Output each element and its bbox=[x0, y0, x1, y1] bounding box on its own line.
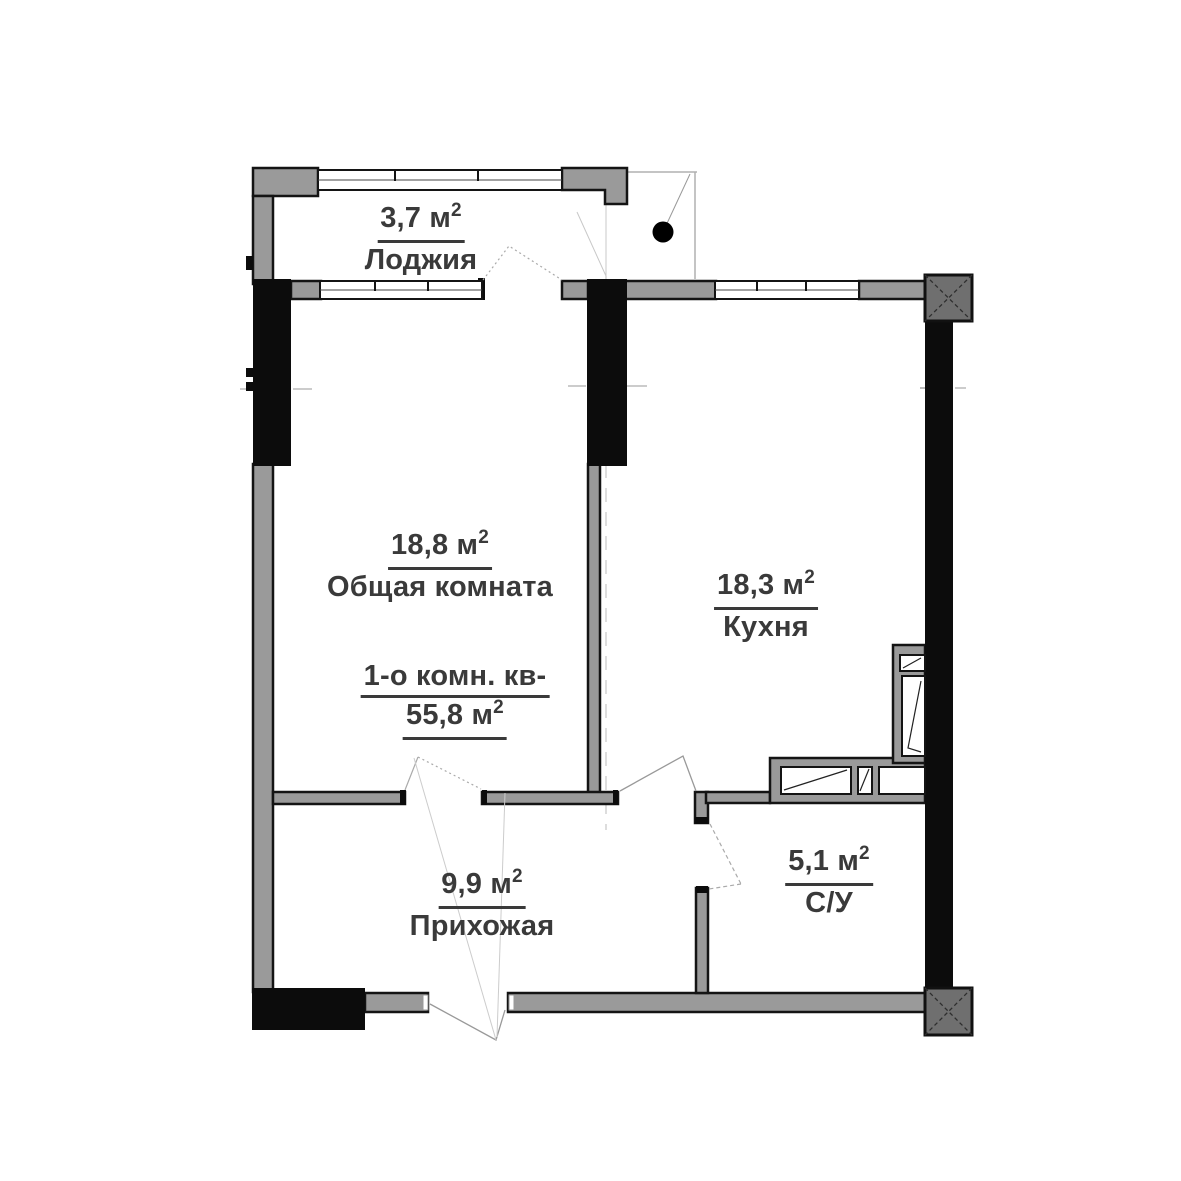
door-jamb-cap bbox=[613, 790, 618, 805]
room-name: Кухня bbox=[723, 611, 809, 643]
wall-notch bbox=[246, 368, 253, 377]
room-label-hallway: 9,9 м2 Прихожая bbox=[410, 867, 555, 943]
door-leaf-living bbox=[405, 757, 418, 790]
window-loggia-outer bbox=[318, 170, 562, 190]
wall-notch bbox=[246, 382, 253, 391]
wall-middle-vertical bbox=[588, 464, 600, 793]
column-top-right bbox=[925, 275, 972, 321]
room-name: Общая комната bbox=[327, 571, 553, 603]
wall-band-segment bbox=[624, 281, 716, 299]
column-left-black bbox=[253, 279, 291, 466]
wall-band-segment bbox=[562, 281, 588, 299]
wall-band-segment bbox=[291, 281, 321, 299]
wall-bathroom-lower bbox=[696, 888, 708, 993]
vent-opening bbox=[902, 676, 925, 756]
door-swing-bathroom bbox=[710, 824, 741, 884]
room-area: 3,7 м2 bbox=[377, 201, 465, 243]
wall-loggia-left bbox=[253, 196, 273, 284]
wall-bottom-left bbox=[365, 993, 428, 1012]
wall-bottom-left-black-block bbox=[252, 988, 365, 1030]
door-swing-entrance bbox=[430, 1004, 505, 1040]
wall-right-black bbox=[925, 321, 953, 988]
apartment-total-area: 55,8 м2 bbox=[403, 698, 507, 740]
room-name: С/У bbox=[805, 887, 853, 919]
floor-plan-drawing bbox=[0, 0, 1181, 1181]
room-label-loggia: 3,7 м2 Лоджия bbox=[365, 201, 478, 277]
apartment-type: 1-о комн. кв- bbox=[361, 659, 550, 698]
door-jamb-cap bbox=[482, 790, 487, 805]
room-label-bathroom: 5,1 м2 С/У bbox=[785, 844, 873, 920]
door-swing-kitchen bbox=[620, 756, 696, 791]
door-jamb-white bbox=[509, 995, 514, 1010]
column-bottom-right bbox=[925, 988, 972, 1035]
wall-interior-right bbox=[482, 792, 618, 804]
vent-opening bbox=[781, 767, 851, 794]
window-kitchen bbox=[715, 281, 859, 299]
wall-notch bbox=[246, 256, 253, 270]
room-area: 5,1 м2 bbox=[785, 844, 873, 886]
column-middle-black bbox=[587, 279, 627, 466]
wall-vent-thin bbox=[706, 792, 770, 803]
door-jamb-cap bbox=[696, 886, 708, 893]
apartment-summary-label: 1-о комн. кв- 55,8 м2 bbox=[361, 659, 550, 740]
round-column-dot bbox=[653, 222, 674, 243]
room-area: 18,3 м2 bbox=[714, 568, 818, 610]
wall-loggia-corner-top-right bbox=[562, 168, 627, 204]
wall-loggia-corner-top-left bbox=[253, 168, 318, 196]
door-jamb-cap bbox=[695, 817, 708, 824]
door-swing-living bbox=[418, 757, 481, 789]
wall-interior-left bbox=[273, 792, 405, 804]
loggia-guide-diagonal bbox=[577, 212, 606, 276]
wall-band-segment bbox=[859, 281, 927, 299]
door-swing-loggia bbox=[483, 246, 562, 280]
door-swing-bathroom bbox=[709, 884, 741, 889]
door-jamb-cap bbox=[400, 790, 406, 805]
vent-opening bbox=[879, 767, 925, 794]
room-name: Прихожая bbox=[410, 910, 555, 942]
wall-left bbox=[253, 464, 273, 992]
room-label-kitchen: 18,3 м2 Кухня bbox=[714, 568, 818, 644]
room-name: Лоджия bbox=[365, 244, 478, 276]
wall-bottom-main bbox=[508, 993, 925, 1012]
room-label-living-room: 18,8 м2 Общая комната bbox=[327, 528, 553, 604]
floor-plan-canvas: 3,7 м2 Лоджия 18,8 м2 Общая комната 1-о … bbox=[0, 0, 1181, 1181]
room-area: 18,8 м2 bbox=[388, 528, 492, 570]
room-area: 9,9 м2 bbox=[438, 867, 526, 909]
window-living-room bbox=[320, 281, 482, 299]
door-jamb-white bbox=[423, 995, 428, 1010]
